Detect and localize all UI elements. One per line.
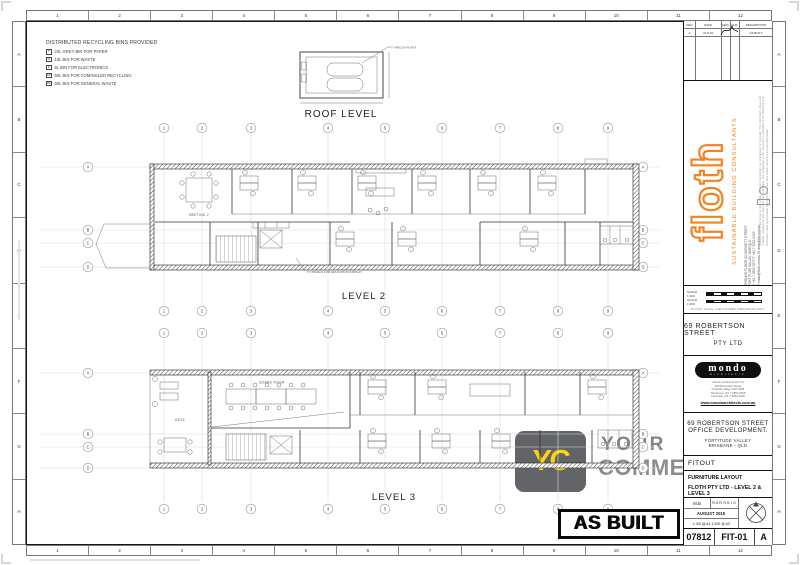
- ruler-cell: 12: [710, 11, 771, 20]
- deck-label: DECK: [175, 418, 186, 422]
- revision-code: A: [754, 529, 772, 545]
- svg-text:B: B: [642, 228, 645, 233]
- scale-bar-segment: [748, 293, 755, 295]
- plot-stamp: [30, 559, 200, 561]
- svg-text:A: A: [642, 371, 645, 376]
- north-arrow-icon: [741, 499, 771, 527]
- ruler-cell: 8: [462, 546, 524, 555]
- revision-table: REV DATE DRN CHK DESCRIPTION A 31.8.15 A…: [684, 21, 772, 80]
- stairs: [216, 236, 256, 262]
- svg-text:A: A: [87, 165, 90, 170]
- scale-bar-segment: [727, 293, 734, 295]
- legend-item-label: 60L BIN FOR COMINGLED RECYCLING: [55, 73, 132, 78]
- architect-panel: mondo architects Mondo Architects Pty Lt…: [684, 355, 772, 412]
- floth-contact: GROUND FLOOR 40 DOGGETT STREET FORTITUDE…: [744, 226, 760, 286]
- drawing-subtitle: FLOTH PTY LTD - LEVEL 2 & LEVEL 3: [688, 485, 772, 497]
- ruler-cell: H: [13, 480, 25, 544]
- ruler-cell: 11: [648, 11, 710, 20]
- stairs: [226, 434, 266, 460]
- ruler-cell: 11: [648, 546, 710, 555]
- legend-item: GW 60L BIN FOR GENERAL WASTE: [46, 81, 251, 87]
- scale-bar-segment: [754, 293, 761, 295]
- ruler-cell: H: [773, 480, 785, 544]
- bin-symbol: E: [46, 65, 52, 71]
- svg-text:C: C: [641, 445, 644, 450]
- certification-mark-icon: [759, 186, 768, 195]
- ruler-cell: D: [773, 218, 785, 283]
- scale-bars: SCALE 1:100 SCALE 1:200 DO NOT SCALE, US…: [684, 285, 772, 313]
- scale-bar-segment: [721, 301, 728, 303]
- roof-level-label: ROOF LEVEL: [305, 109, 378, 120]
- ruler-cell: 4: [213, 546, 275, 555]
- info-grid: M.B R.G.R, R.H, I.O AUGUST 2015 1:100 @ …: [684, 497, 772, 528]
- svg-text:C: C: [86, 445, 89, 450]
- signature: [720, 25, 740, 37]
- ruler-cell: 12: [710, 546, 771, 555]
- crop-mark: [1, 1, 11, 11]
- ruler-cell: 9: [524, 11, 586, 20]
- floor-plans: 112233445566778899AABBCCDD11223344556677…: [26, 21, 683, 545]
- ruler-cell: 10: [586, 546, 648, 555]
- ruler-cell: 5: [275, 546, 337, 555]
- legend-item-label: 10L BIN FOR WASTE: [55, 57, 96, 62]
- rev-header: REV: [684, 23, 695, 27]
- project-panel: 69 ROBERTSON STREET OFFICE DEVELOPMENT. …: [684, 412, 772, 455]
- svg-text:B: B: [87, 228, 90, 233]
- revision-date: 31.8.15: [695, 31, 721, 35]
- bin-symbol: P: [46, 49, 52, 55]
- ruler-cell: F: [13, 349, 25, 414]
- ruler-cell: G: [773, 414, 785, 479]
- roof-annotation: AIRCON PLANT: [394, 46, 416, 50]
- client-name-2: PTY LTD: [713, 340, 742, 347]
- description-header: DESCRIPTION: [739, 23, 773, 27]
- architect-line: Facsimile +61 7 3852 2526: [684, 395, 772, 399]
- project-city: BRISBANE - QLD: [709, 443, 748, 448]
- svg-text:C: C: [86, 241, 89, 246]
- level3-label: LEVEL 3: [372, 492, 416, 503]
- level2-label: LEVEL 2: [342, 291, 386, 302]
- scale-label: SCALE 1:200: [687, 298, 704, 306]
- drawing-number: FIT-01: [714, 529, 755, 545]
- scale-bar-segment: [707, 301, 714, 303]
- ruler-cell: 4: [213, 11, 275, 20]
- floth-logo: floth: [685, 106, 731, 276]
- revision-letter: A: [684, 31, 695, 35]
- title-block: REV DATE DRN CHK DESCRIPTION A 31.8.15 A…: [683, 21, 772, 545]
- ruler-cell: 2: [89, 546, 151, 555]
- project-name: 69 ROBERTSON STREET: [687, 420, 768, 427]
- drawing-date: AUGUST 2015: [684, 508, 738, 518]
- client-panel: 69 ROBERTSON STREET PTY LTD: [684, 313, 772, 355]
- meeting-room-label: MEETING 2: [189, 213, 209, 217]
- ruler-top: 123456789101112: [26, 10, 772, 21]
- ruler-cell: 1: [27, 546, 89, 555]
- legend-title: DISTRIBUTED RECYCLING BINS PROVIDED: [46, 40, 251, 46]
- legend-item-label: 20L GREY BIN FOR PAPER: [55, 49, 108, 54]
- crop-mark: [789, 1, 799, 11]
- board-room-label: BOARD ROOM: [259, 381, 284, 385]
- date-header: DATE: [695, 23, 721, 27]
- ruler-cell: C: [13, 153, 25, 218]
- ruler-cell: 3: [151, 546, 213, 555]
- svg-text:C: C: [641, 241, 644, 246]
- scale-bar-segment: [748, 301, 755, 303]
- bin-symbol: CR: [46, 73, 52, 79]
- mondo-wordmark: mondo: [708, 364, 747, 374]
- structural-grid: 112233445566778899AABBCCDD11223344556677…: [40, 123, 660, 514]
- scale-bar-segment: [721, 293, 728, 295]
- ruler-cell: 5: [275, 11, 337, 20]
- ruler-right: ABCDEFGH: [772, 21, 786, 545]
- copyright-note: Reproduction of the whole or part of thi…: [759, 96, 773, 246]
- stage-label: FITOUT: [688, 460, 715, 467]
- svg-text:A: A: [87, 371, 90, 376]
- roof-plan: AIRCON PLANT ROOF LEVEL: [300, 46, 416, 121]
- drawn-by: M.B: [684, 498, 710, 508]
- svg-text:D: D: [641, 466, 644, 471]
- ruler-cell: 1: [27, 11, 89, 20]
- drawing-title: FURNITURE LAYOUT: [688, 475, 742, 481]
- mondo-logo: mondo architects: [695, 362, 761, 378]
- ruler-cell: 10: [586, 11, 648, 20]
- drawing-number-panel: 07812 FIT-01 A: [684, 528, 772, 545]
- scale-bar-segment: [734, 293, 741, 295]
- scale-bar-segment: [727, 301, 734, 303]
- scale-bar-segment: [741, 301, 748, 303]
- ruler-cell: A: [773, 22, 785, 87]
- legend-item: W 10L BIN FOR WASTE: [46, 57, 251, 63]
- ruler-cell: 3: [151, 11, 213, 20]
- scale-bar: [706, 292, 762, 296]
- bin-symbol: GW: [46, 81, 52, 87]
- recycling-legend: DISTRIBUTED RECYCLING BINS PROVIDED P 20…: [46, 40, 251, 86]
- svg-text:D: D: [86, 466, 89, 471]
- legend-item: CR 60L BIN FOR COMINGLED RECYCLING: [46, 73, 251, 79]
- scale-bar-segment: [714, 301, 721, 303]
- consultant-panel: floth SUSTAINABLE BUILDING CONSULTANTS G…: [684, 80, 772, 285]
- ruler-cell: F: [773, 349, 785, 414]
- ruler-cell: 6: [337, 546, 399, 555]
- bin-symbol: W: [46, 57, 52, 63]
- crop-mark: [789, 554, 799, 564]
- legend-item-label: 60L BIN FOR GENERAL WASTE: [55, 81, 117, 86]
- margin-note: [18, 240, 20, 320]
- floth-tagline: SUSTAINABLE BUILDING CONSULTANTS: [732, 106, 740, 276]
- checked-by: R.G.R, R.H, I.O: [710, 498, 738, 508]
- architect-website: www.mondoarchitects.com.au: [684, 401, 772, 405]
- level2-plan: TV PANELS FOR EDUCATION DISPLAY MEETING …: [96, 159, 639, 302]
- ruler-cell: 6: [337, 11, 399, 20]
- drawing-sheet: 123456789101112 123456789101112 ABCDEFGH…: [0, 0, 800, 565]
- level3-plan: DECK BOARD ROOM: [150, 370, 639, 503]
- level2-annotation: TV PANELS FOR EDUCATION DISPLAY: [307, 270, 362, 274]
- ruler-cell: G: [13, 414, 25, 479]
- job-number: 07812: [684, 529, 714, 545]
- scale-note: DO NOT SCALE, USE FIGURED DIMENSIONS ONL…: [684, 308, 772, 311]
- architect-contact: Mondo Architects Pty Ltd 469 Brunswick S…: [684, 381, 772, 399]
- ruler-cell: 8: [462, 11, 524, 20]
- contact-line: T +61 7 3252 0977 F +61 7 3252 2499: [752, 226, 756, 286]
- ruler-cell: A: [13, 22, 25, 87]
- mondo-subtitle: architects: [710, 374, 746, 377]
- ruler-cell: 2: [89, 11, 151, 20]
- legend-item: E 6L BIN FOR ELECTRONICS: [46, 65, 251, 71]
- scale-bar-segment: [734, 301, 741, 303]
- scale-bar: [706, 300, 762, 304]
- ruler-cell: E: [773, 284, 785, 349]
- legend-item: P 20L GREY BIN FOR PAPER: [46, 49, 251, 55]
- svg-text:B: B: [87, 432, 90, 437]
- ruler-cell: 7: [399, 546, 461, 555]
- svg-text:D: D: [641, 265, 644, 270]
- svg-text:A: A: [642, 165, 645, 170]
- project-name-2: OFFICE DEVELOPMENT.: [688, 427, 768, 434]
- stage-panel: FITOUT: [684, 455, 772, 470]
- svg-text:D: D: [86, 265, 89, 270]
- revision-description: AS BUILT: [739, 31, 773, 35]
- scale-bar-segment: [741, 293, 748, 295]
- crop-mark: [1, 554, 11, 564]
- ruler-bottom: 123456789101112: [26, 545, 772, 556]
- as-built-stamp: AS BUILT: [558, 509, 680, 539]
- legend-item-label: 6L BIN FOR ELECTRONICS: [55, 65, 109, 70]
- svg-text:B: B: [642, 432, 645, 437]
- scale-bar-segment: [714, 293, 721, 295]
- ruler-cell: 9: [524, 546, 586, 555]
- certification-mark-icon: [757, 199, 770, 205]
- drawing-title-panel: FURNITURE LAYOUT FLOTH PTY LTD - LEVEL 2…: [684, 470, 772, 497]
- ruler-cell: B: [13, 87, 25, 152]
- ruler-cell: B: [773, 87, 785, 152]
- scale-bar-segment: [754, 301, 761, 303]
- client-name: 69 ROBERTSON STREET: [684, 323, 772, 337]
- scale-bar-segment: [707, 293, 714, 295]
- ruler-cell: C: [773, 153, 785, 218]
- ruler-cell: 7: [399, 11, 461, 20]
